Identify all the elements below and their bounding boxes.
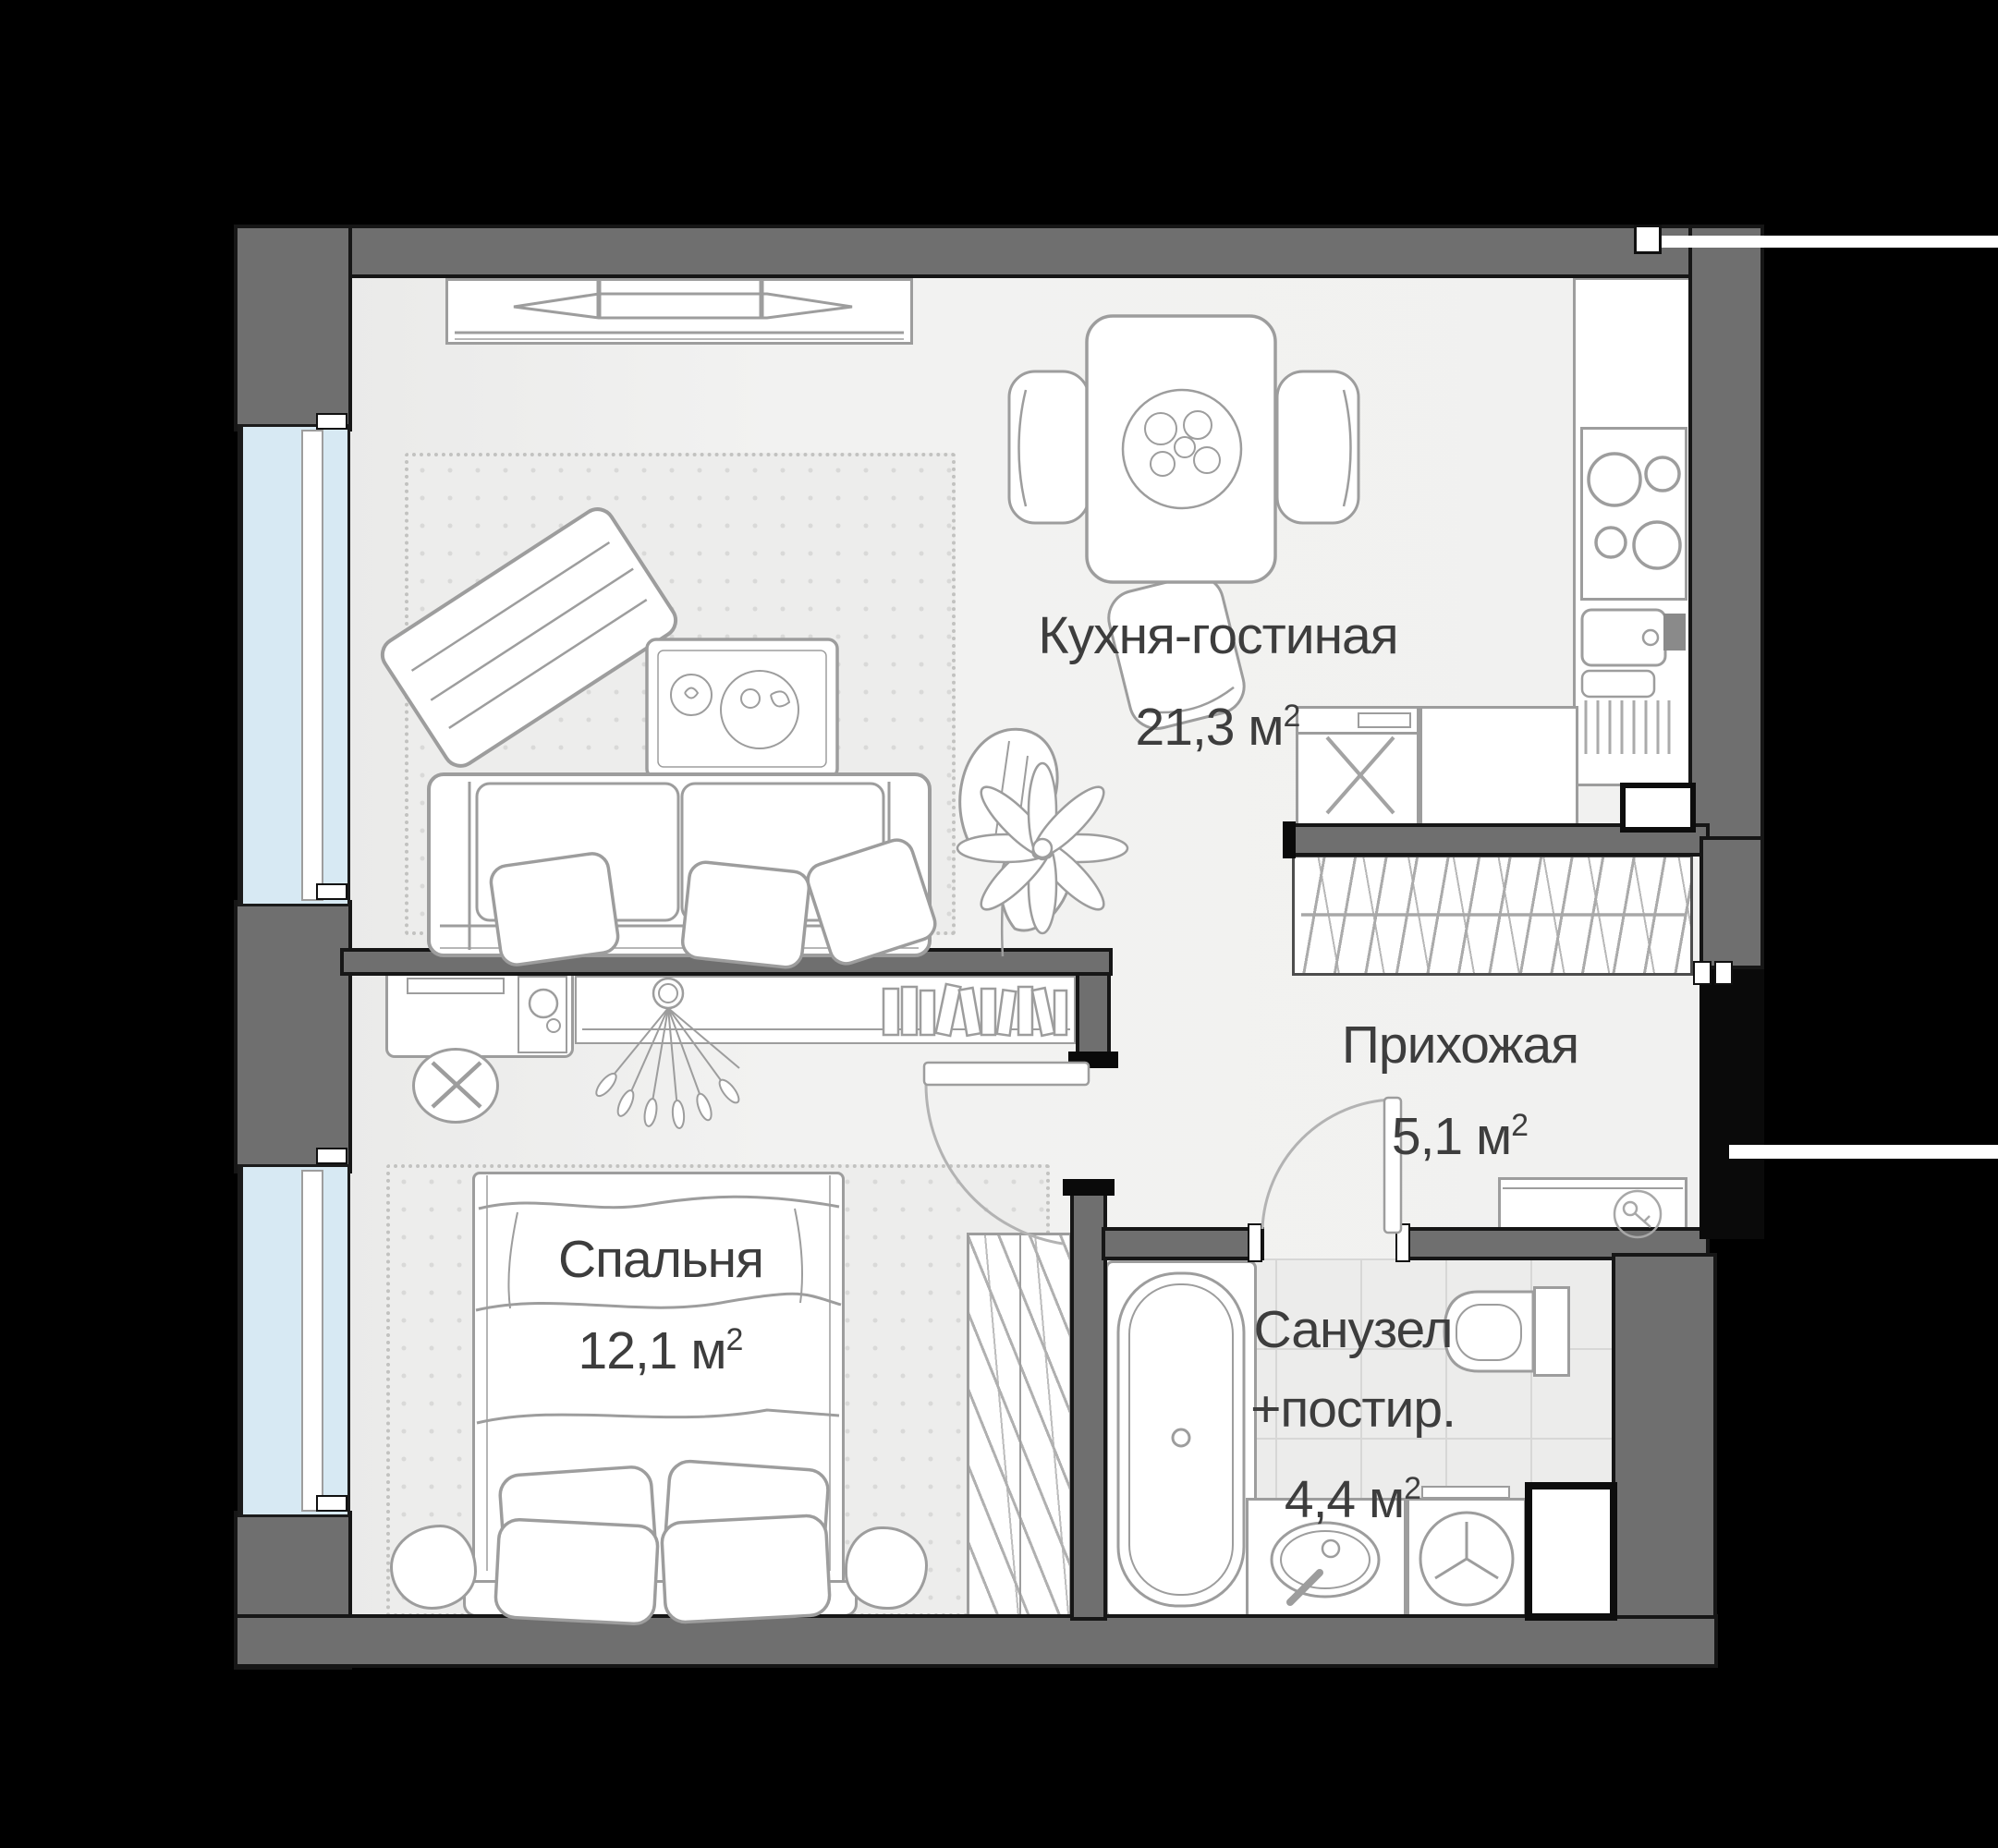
room-name: Санузел [1250,1290,1456,1369]
bed-pillow [494,1519,658,1625]
label-kitchen-living: Кухня-гостиная 21,3 м2 [1038,596,1397,768]
sofa-pillow [681,860,810,968]
dried-bouquet-icon [593,979,742,1128]
sofa [429,774,939,969]
sofa-pillow [489,852,620,967]
floor-plan-canvas: Кухня-гостиная 21,3 м2 Прихожая 5,1 м2 С… [0,0,1998,1848]
room-area: 5,1 м2 [1342,1086,1578,1177]
key-icon [1614,1191,1661,1237]
room-area: 21,3 м2 [1038,676,1397,768]
room-name: Прихожая [1342,1005,1578,1086]
star-plant-icon [957,763,1127,933]
bed-pillow [661,1514,830,1623]
bedroom-door [924,1063,1089,1244]
label-bathroom: Санузел +постир. 4,4 м2 [1250,1290,1456,1539]
folded-blanket [376,503,682,772]
stool-x-mark [432,1063,481,1107]
stove-burners-icon [1589,454,1680,568]
bathtub-basin-icon [1118,1273,1244,1606]
room-area: 4,4 м2 [1250,1449,1456,1539]
room-name: Спальня [558,1220,763,1300]
tv-icon [455,279,904,339]
kitchen-sink-icon [1582,610,1686,754]
room-area: 12,1 м2 [558,1300,763,1392]
room-name: Кухня-гостиная [1038,596,1397,676]
dining-chair [1009,371,1089,523]
dresser-details [408,977,567,1052]
label-hallway: Прихожая 5,1 м2 [1342,1005,1578,1177]
detail-overlay [0,0,1998,1848]
room-name-2: +постир. [1250,1369,1456,1449]
label-bedroom: Спальня 12,1 м2 [558,1220,763,1392]
dining-table [1087,316,1275,582]
decor-tray-table [647,639,837,778]
toilet-icon [1444,1292,1533,1371]
books-icon [582,984,1070,1036]
dining-chair [1277,371,1358,523]
